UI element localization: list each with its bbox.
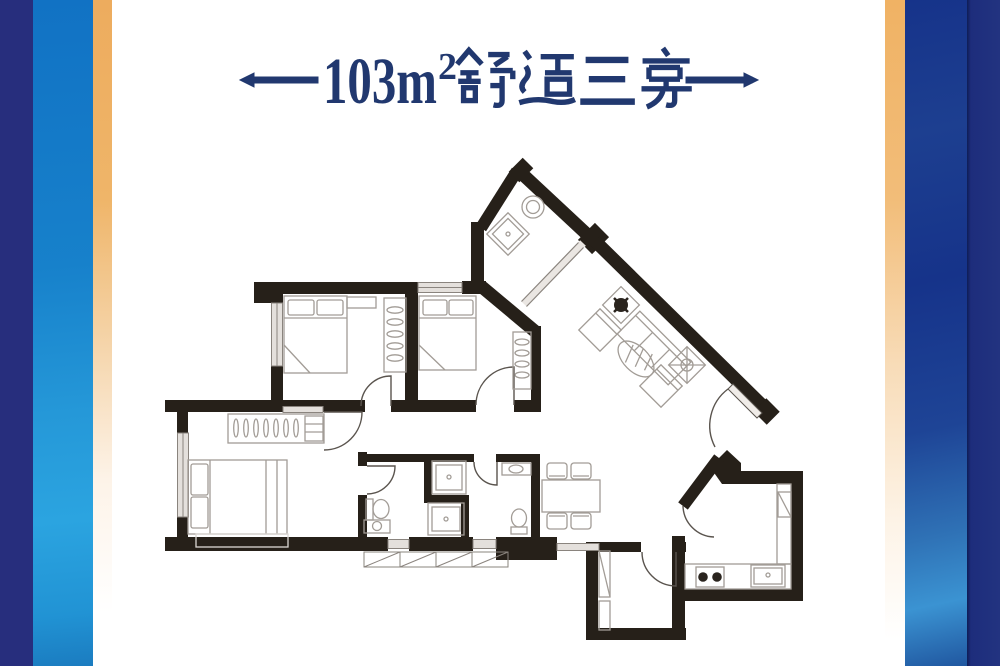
svg-text:103m: 103m bbox=[323, 45, 437, 118]
svg-text:2: 2 bbox=[438, 46, 457, 88]
